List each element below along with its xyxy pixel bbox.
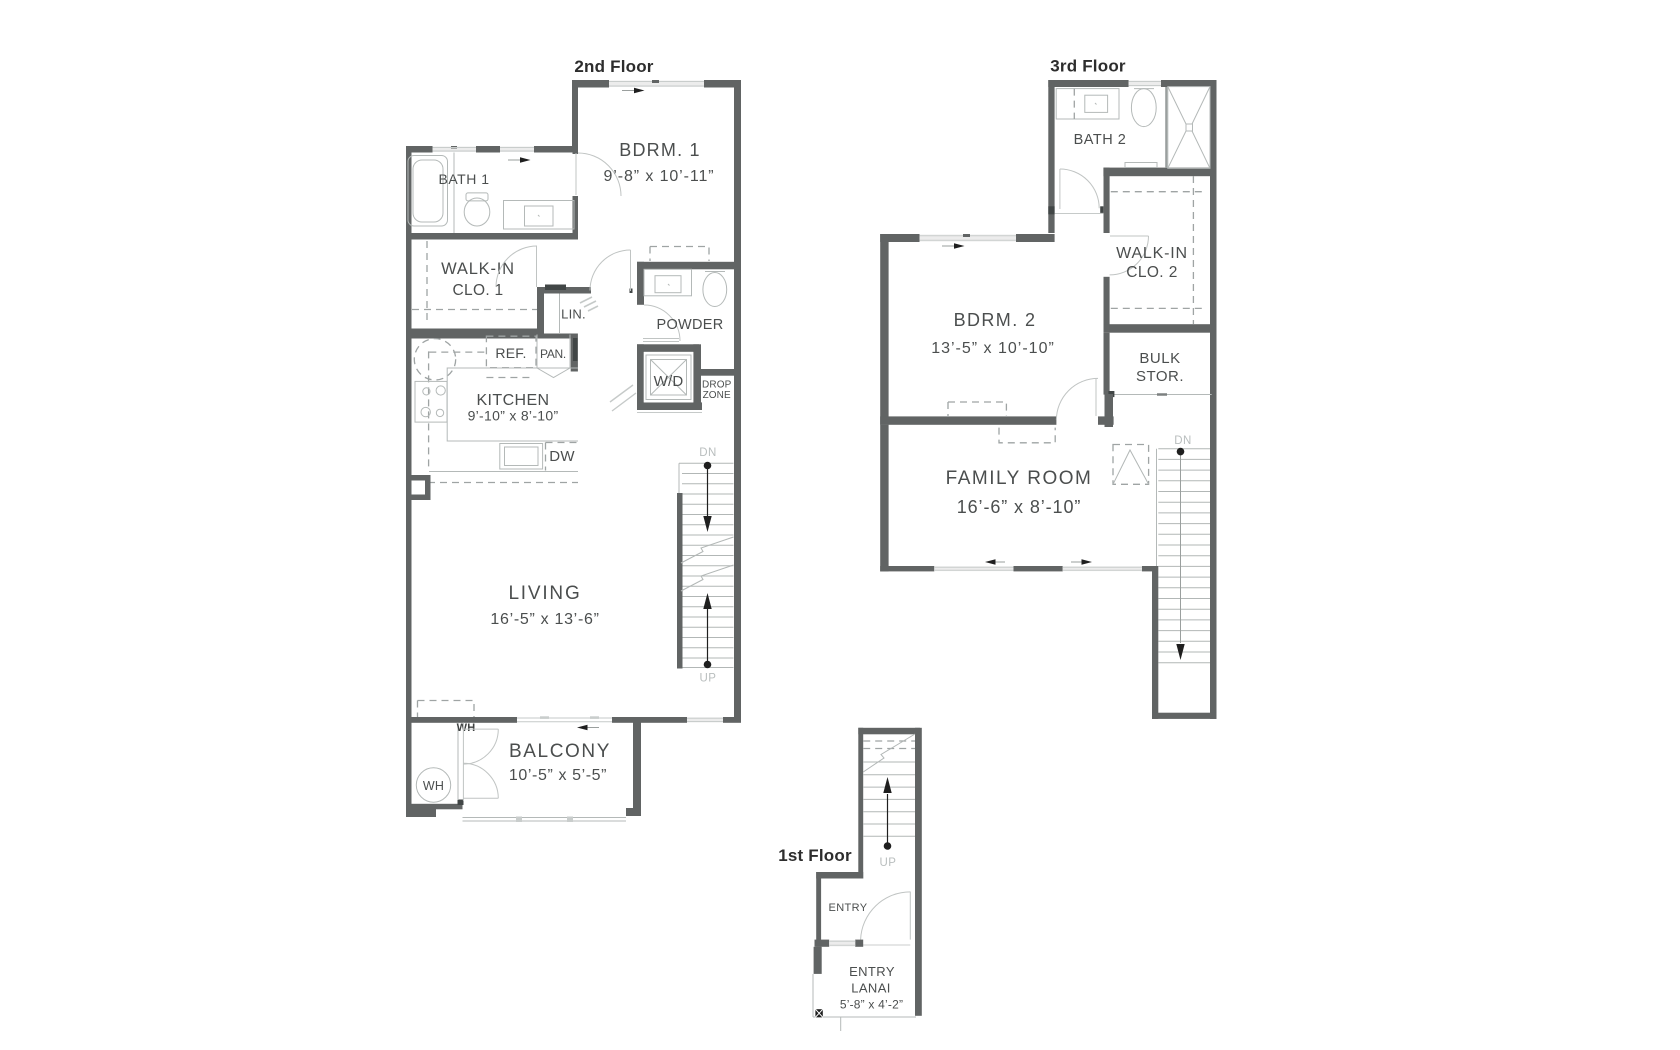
svg-text:ENTRY: ENTRY [828,902,867,914]
svg-text:UP: UP [700,673,717,685]
svg-text:WH: WH [457,722,476,734]
svg-text:POWDER: POWDER [656,317,723,333]
svg-text:10’-5” x 5’-5”: 10’-5” x 5’-5” [509,767,607,784]
svg-text:DN: DN [699,447,717,459]
svg-text:9’-10” x 8’-10”: 9’-10” x 8’-10” [468,408,559,424]
svg-text:REF.: REF. [495,345,526,361]
svg-text:BDRM. 2: BDRM. 2 [954,310,1037,330]
svg-text:BATH 2: BATH 2 [1074,132,1127,148]
svg-text:DN: DN [1174,435,1192,447]
svg-text:PAN.: PAN. [540,347,566,361]
svg-text:3rd Floor: 3rd Floor [1050,57,1126,76]
svg-text:UP: UP [880,857,897,869]
svg-text:BALCONY: BALCONY [509,741,611,762]
svg-text:2nd Floor: 2nd Floor [574,57,653,76]
svg-text:9’-8” x 10’-11”: 9’-8” x 10’-11” [603,168,714,185]
svg-text:WH: WH [423,779,444,793]
svg-text:CLO. 2: CLO. 2 [1126,264,1178,281]
svg-text:FAMILY ROOM: FAMILY ROOM [946,468,1093,489]
svg-text:BULK: BULK [1139,350,1180,367]
svg-text:13’-5” x 10’-10”: 13’-5” x 10’-10” [931,340,1055,357]
svg-text:16’-6” x 8’-10”: 16’-6” x 8’-10” [957,497,1082,517]
svg-text:16’-5” x 13’-6”: 16’-5” x 13’-6” [490,611,599,628]
svg-text:KITCHEN: KITCHEN [476,392,549,409]
svg-text:BDRM. 1: BDRM. 1 [619,140,700,160]
svg-text:LIN.: LIN. [561,307,586,322]
svg-text:5’-8” x 4’-2”: 5’-8” x 4’-2” [840,998,903,1012]
svg-text:LANAI: LANAI [851,981,891,996]
svg-text:WALK-IN: WALK-IN [1116,245,1188,262]
svg-text:ENTRY: ENTRY [849,964,895,979]
svg-text:W/D: W/D [654,373,684,390]
svg-text:ZONE: ZONE [703,390,731,401]
svg-text:DW: DW [549,448,575,465]
svg-text:BATH 1: BATH 1 [439,171,490,187]
svg-text:STOR.: STOR. [1136,368,1184,385]
svg-text:LIVING: LIVING [508,583,581,604]
svg-text:1st Floor: 1st Floor [778,846,852,865]
svg-text:DROP: DROP [702,380,732,391]
